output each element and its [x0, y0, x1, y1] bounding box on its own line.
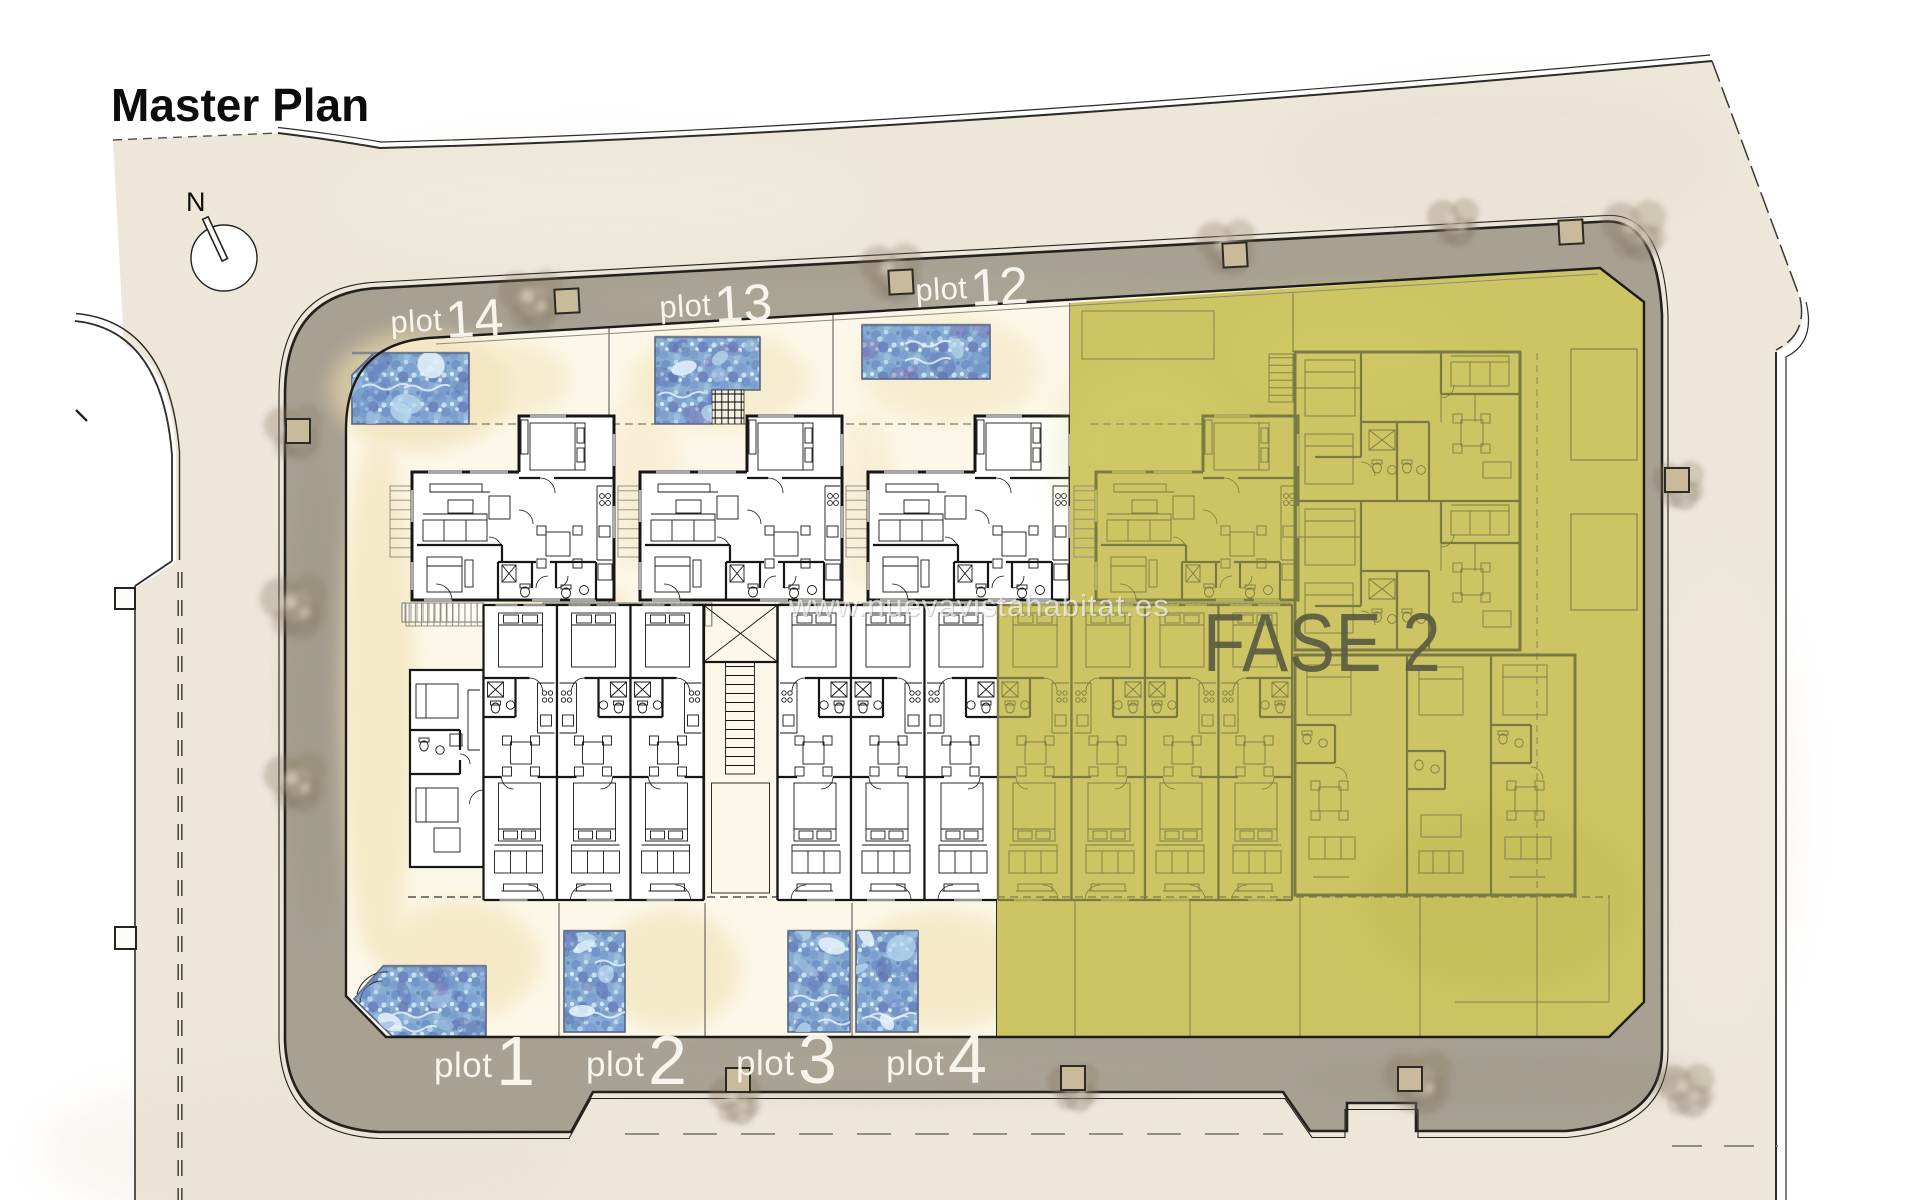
- svg-text:N: N: [186, 187, 206, 217]
- svg-text:plot: plot: [658, 287, 712, 325]
- svg-text:12: 12: [969, 257, 1030, 318]
- svg-text:Master Plan: Master Plan: [111, 79, 369, 131]
- svg-text:www.nuevavistahabitat.es: www.nuevavistahabitat.es: [788, 588, 1170, 623]
- svg-text:13: 13: [713, 274, 774, 335]
- svg-text:plot: plot: [914, 270, 968, 308]
- svg-text:plot: plot: [886, 1044, 944, 1083]
- svg-text:FASE 2: FASE 2: [1203, 597, 1442, 689]
- svg-text:4: 4: [948, 1020, 987, 1098]
- svg-text:plot: plot: [389, 302, 443, 340]
- svg-text:plot: plot: [586, 1045, 644, 1084]
- svg-text:plot: plot: [434, 1046, 492, 1085]
- svg-text:14: 14: [444, 289, 505, 350]
- svg-text:2: 2: [648, 1021, 687, 1099]
- svg-text:3: 3: [798, 1020, 837, 1098]
- svg-text:plot: plot: [736, 1044, 794, 1083]
- svg-text:1: 1: [496, 1022, 535, 1100]
